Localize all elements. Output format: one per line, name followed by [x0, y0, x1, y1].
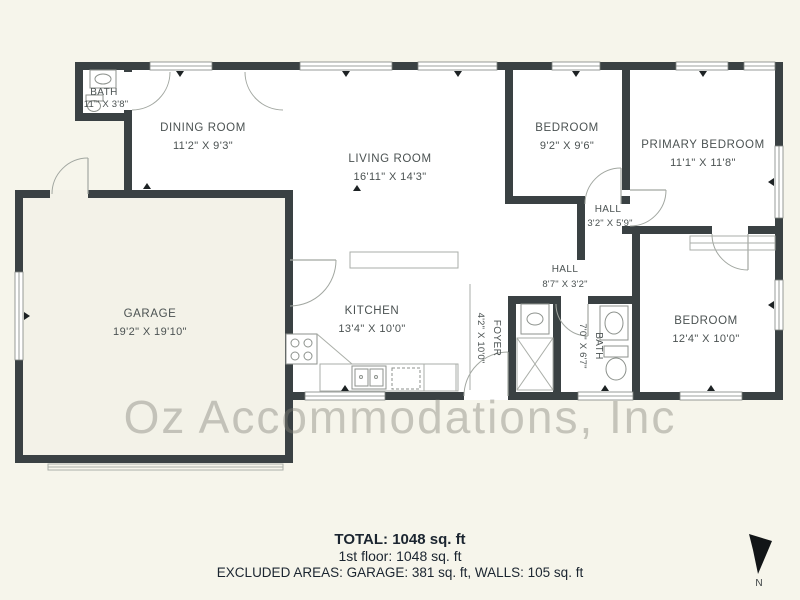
room-dims: 11'" X 3'8" [84, 99, 129, 110]
window [552, 62, 600, 70]
room-name: GARAGE [124, 308, 177, 320]
room-name: HALL [552, 264, 579, 275]
north-label: N [755, 578, 762, 589]
room-name: HALL [595, 204, 622, 215]
window [15, 272, 23, 360]
room-name: BEDROOM [674, 315, 738, 327]
window [775, 146, 783, 218]
area-summary: TOTAL: 1048 sq. ft 1st floor: 1048 sq. f… [0, 531, 800, 581]
room-dims: 7'0" X 6'7" [577, 323, 588, 368]
floor-plan-svg: BATH 11'" X 3'8" DINING ROOM 11'2" X 9'3… [0, 0, 800, 600]
floor-area-line: 1st floor: 1048 sq. ft [0, 548, 800, 565]
room-name: KITCHEN [345, 305, 400, 317]
window [744, 62, 775, 70]
room-dims: 4'2" X 10'0" [475, 313, 486, 364]
compass-north-arrow: N [736, 524, 786, 590]
kitchen-sink [352, 366, 386, 389]
room-name: BEDROOM [535, 122, 599, 134]
room-dims: 16'11" X 14'3" [353, 171, 426, 183]
excluded-area-line: EXCLUDED AREAS: GARAGE: 381 sq. ft, WALL… [0, 565, 800, 581]
room-name: DINING ROOM [160, 122, 246, 134]
entry-porch-notch [75, 121, 124, 190]
window [150, 62, 212, 70]
room-name: BATH [90, 87, 118, 98]
watermark-text: Oz Accommodations, Inc [0, 390, 800, 444]
room-dims: 9'2" X 9'6" [540, 140, 594, 152]
window [775, 280, 783, 330]
window [676, 62, 728, 70]
room-name: FOYER [491, 320, 502, 356]
room-dims: 8'7" X 3'2" [542, 279, 587, 290]
room-dims: 3'2" X 5'9" [587, 218, 632, 229]
bath1-sink [90, 70, 116, 88]
room-dims: 19'2" X 19'10" [113, 326, 187, 338]
room-dims: 13'4" X 10'0" [338, 323, 405, 335]
room-name: PRIMARY BEDROOM [641, 139, 765, 151]
room-dims: 11'2" X 9'3" [173, 140, 233, 152]
stove [286, 334, 317, 364]
garage-door [48, 464, 283, 470]
room-name: BATH [593, 332, 604, 360]
floorplan-canvas: BATH 11'" X 3'8" DINING ROOM 11'2" X 9'3… [0, 0, 800, 600]
room-dims: 11'1" X 11'8" [670, 157, 736, 169]
north-arrow-icon [749, 534, 772, 574]
window [300, 62, 392, 70]
wc-sink [521, 304, 549, 334]
room-name: LIVING ROOM [348, 153, 431, 165]
total-area-line: TOTAL: 1048 sq. ft [0, 531, 800, 548]
window [418, 62, 497, 70]
room-dims: 12'4" X 10'0" [672, 333, 739, 345]
